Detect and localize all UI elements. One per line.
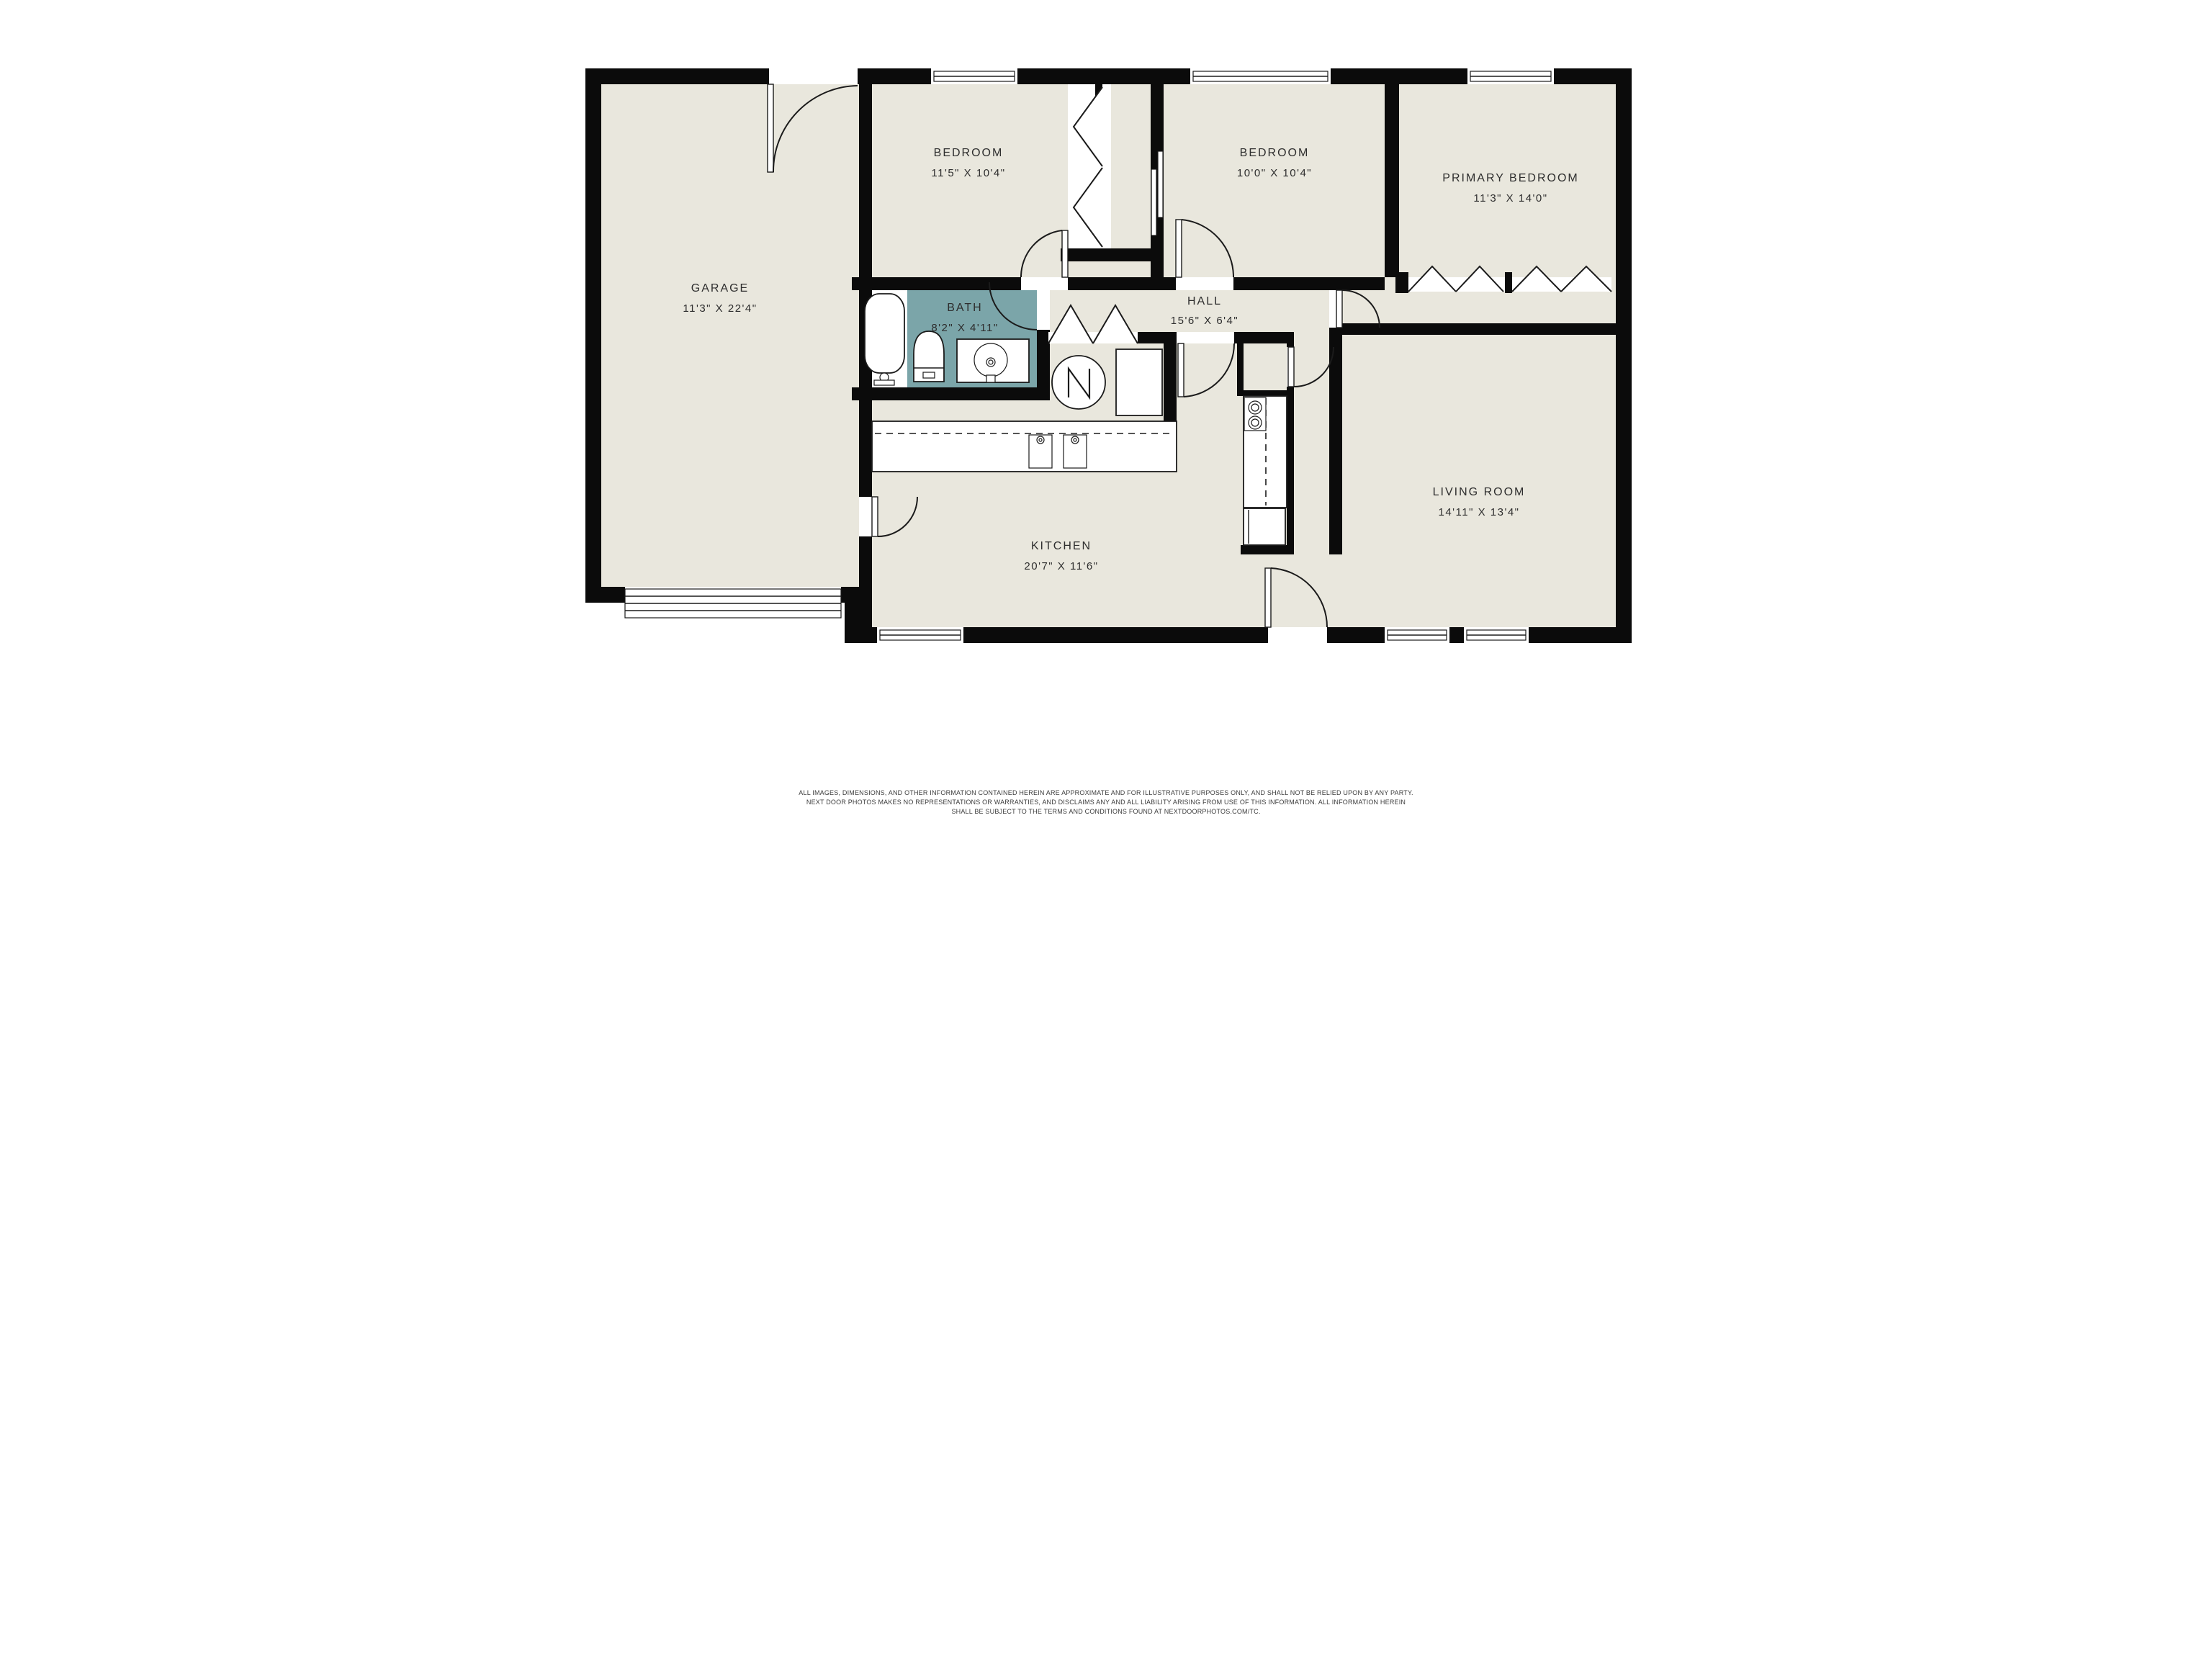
range (1244, 397, 1266, 431)
wall-utility-top-right (1136, 332, 1177, 343)
room-dims-living: 14'11" X 13'4" (1439, 506, 1520, 518)
wall-pantry-bottom (1237, 390, 1294, 396)
floor-plan-svg: GARAGE 11'3" X 22'4" BEDROOM 11'5" X 10'… (553, 0, 1659, 829)
toilet (914, 331, 944, 382)
wall-hall-top-3 (1233, 277, 1385, 290)
wall-garage-right-lower (859, 536, 872, 603)
wall-pantry-left (1237, 332, 1244, 396)
window-living-2 (1464, 627, 1529, 643)
wall-below-fridge (1241, 545, 1294, 554)
window-bedroom1 (931, 68, 1017, 84)
room-dims-primary: 11'3" X 14'0" (1473, 192, 1547, 204)
disclaimer-line-2: NEXT DOOR PHOTOS MAKES NO REPRESENTATION… (806, 799, 1406, 806)
wall-bedroom2-primary (1385, 68, 1399, 277)
room-dims-bedroom2: 10'0" X 10'4" (1237, 167, 1312, 179)
window-primary-bedroom (1467, 68, 1554, 84)
wall-wardrobe-left-stub (1395, 272, 1408, 293)
water-heater (1052, 356, 1105, 409)
room-dims-bath: 8'2" X 4'11" (931, 322, 998, 334)
wall-living-top (1342, 323, 1616, 335)
wall-wardrobe-mullion (1505, 272, 1512, 293)
room-label-bedroom1: BEDROOM (934, 147, 1004, 159)
window-kitchen (877, 627, 963, 643)
disclaimer-line-1: ALL IMAGES, DIMENSIONS, AND OTHER INFORM… (799, 789, 1413, 796)
vanity-sink (957, 339, 1029, 382)
room-label-kitchen: KITCHEN (1031, 540, 1092, 552)
room-dims-hall: 15'6" X 6'4" (1171, 315, 1238, 327)
floor-plan-page: GARAGE 11'3" X 22'4" BEDROOM 11'5" X 10'… (553, 0, 1659, 829)
garage-door (625, 587, 841, 619)
room-label-bedroom2: BEDROOM (1240, 147, 1310, 159)
window-bedroom2 (1190, 68, 1331, 84)
wall-hall-top-1 (872, 277, 1021, 290)
room-dims-garage: 11'3" X 22'4" (683, 302, 757, 315)
wall-hall-top-2 (1068, 277, 1176, 290)
room-label-hall: HALL (1187, 295, 1222, 307)
wall-utility-right (1164, 343, 1177, 421)
refrigerator (1244, 508, 1285, 545)
room-dims-bedroom1: 11'5" X 10'4" (931, 167, 1005, 179)
disclaimer: ALL IMAGES, DIMENSIONS, AND OTHER INFORM… (799, 789, 1413, 815)
wall-bath-bottom (852, 387, 1050, 400)
room-dims-kitchen: 20'7" X 11'6" (1024, 560, 1098, 572)
room-label-bath: BATH (947, 302, 982, 314)
disclaimer-line-3: SHALL BE SUBJECT TO THE TERMS AND CONDIT… (951, 808, 1260, 815)
wall-left (585, 68, 601, 603)
wall-bath-top-left (852, 277, 872, 290)
wall-right (1616, 68, 1632, 643)
wall-below-closets (1061, 248, 1164, 261)
window-living-1 (1385, 627, 1449, 643)
room-label-garage: GARAGE (691, 282, 749, 295)
washer-dryer (1116, 349, 1162, 415)
kitchen-counter (872, 421, 1177, 472)
room-label-living: LIVING ROOM (1433, 486, 1526, 498)
room-label-primary: PRIMARY BEDROOM (1442, 172, 1578, 184)
